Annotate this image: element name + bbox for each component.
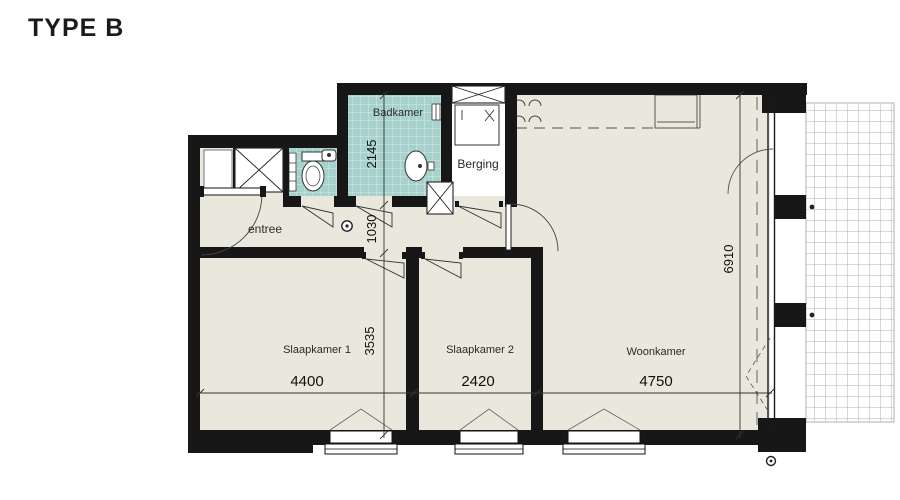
wall-bedrooms-top (188, 247, 364, 258)
wall-berging-right (505, 85, 517, 207)
label-woonkamer: Woonkamer (626, 346, 685, 358)
washing-machine-fixture (455, 105, 499, 145)
dim-hal-depth: 1030 (364, 215, 379, 244)
wall-sl1-sl2 (406, 253, 419, 435)
dim-slaapkamer2-width: 2420 (461, 373, 494, 390)
floor-circle-facade (767, 457, 776, 466)
dim-slaapkamer-depth: 3535 (362, 327, 377, 356)
facade-pier (774, 303, 806, 327)
floor-plan-drawing: 2145 1030 3535 6910 4400 2420 4750 Badka… (0, 0, 900, 500)
label-berging: Berging (457, 157, 498, 171)
label-entree: entree (248, 222, 282, 236)
floor-plan-page: TYPE B (0, 0, 900, 500)
dim-badkamer-depth: 2145 (364, 140, 379, 169)
toilet-fixture (302, 152, 324, 191)
wall-sl2-woonkamer (531, 253, 543, 435)
wall-top-left (188, 135, 348, 148)
radiator-toilet (289, 153, 296, 191)
wall-top (337, 83, 807, 95)
wall-left (188, 135, 200, 447)
floor-circle-entree (342, 221, 352, 231)
label-slaapkamer2: Slaapkamer 2 (446, 344, 514, 356)
label-badkamer: Badkamer (373, 107, 423, 119)
wall-badkamer-left (337, 85, 348, 207)
dim-woonkamer-width: 4750 (639, 373, 672, 390)
dim-woonkamer-depth: 6910 (721, 245, 736, 274)
balcony-grid (806, 103, 894, 422)
wall-corner-bottom-right (758, 418, 806, 452)
closet (204, 150, 232, 190)
label-slaapkamer1: Slaapkamer 1 (283, 344, 351, 356)
toilet-washbasin-fixture (322, 150, 336, 161)
facade-pier (774, 195, 806, 219)
dim-slaapkamer1-width: 4400 (290, 373, 323, 390)
